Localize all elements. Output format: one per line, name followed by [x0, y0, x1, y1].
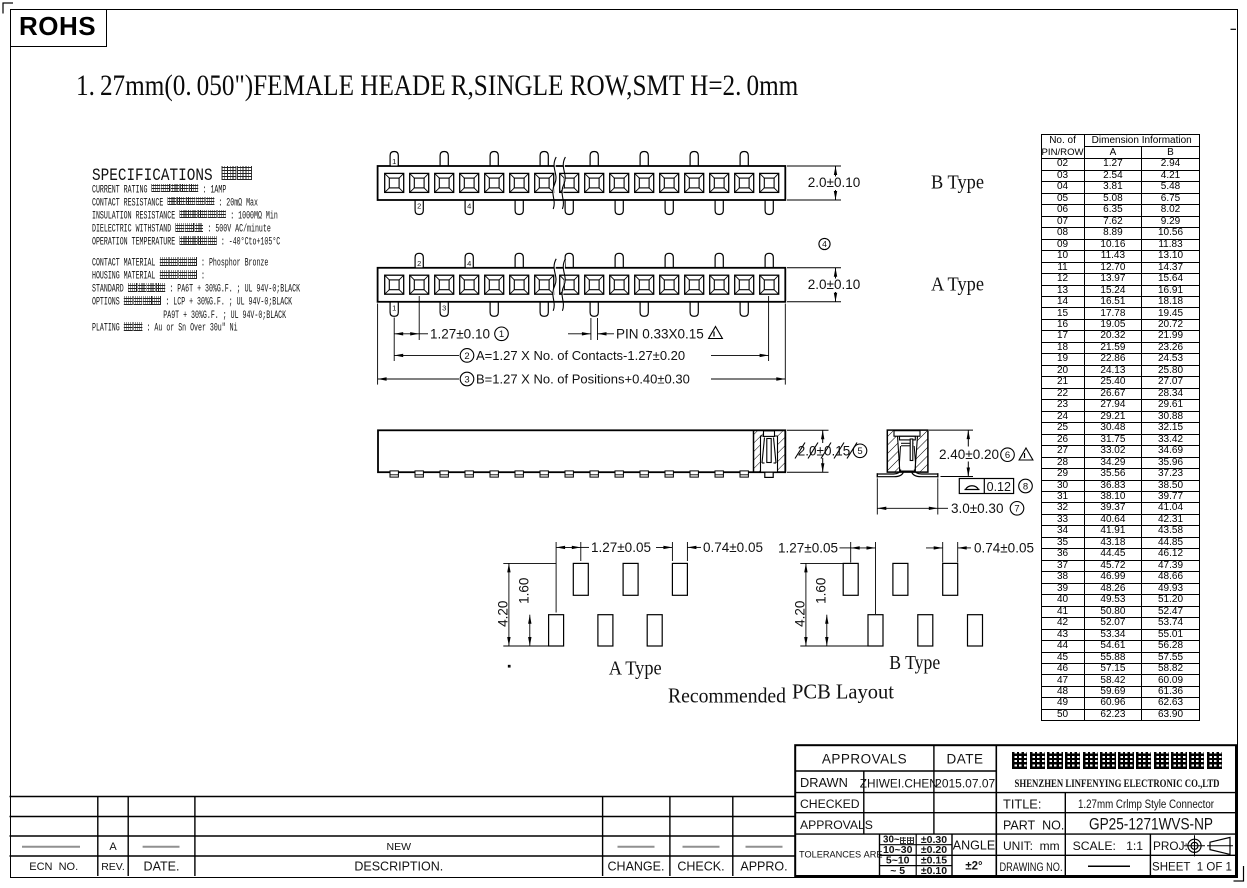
svg-text:B Type: B Type — [889, 652, 940, 674]
svg-text:8: 8 — [1023, 481, 1028, 492]
svg-text:A=1.27 X No. of Contacts-1.27±: A=1.27 X No. of Contacts-1.27±0.20 — [476, 348, 685, 363]
svg-text:1.27±0.05: 1.27±0.05 — [591, 540, 651, 555]
svg-text:2: 2 — [417, 202, 421, 211]
svg-text:A: A — [109, 841, 117, 853]
svg-text:±2°: ±2° — [965, 861, 983, 873]
svg-text:SHENZHEN LINFENYING ELECTRONIC: SHENZHEN LINFENYING ELECTRONIC CO.,LTD — [1015, 777, 1220, 790]
svg-text:0.74±0.05: 0.74±0.05 — [974, 540, 1034, 555]
svg-text:PIN 0.33X0.15: PIN 0.33X0.15 — [616, 326, 704, 341]
svg-text:CHECK.: CHECK. — [677, 859, 724, 873]
svg-text:PCB Layout: PCB Layout — [792, 680, 894, 704]
svg-text:1: 1 — [499, 329, 504, 340]
svg-text:2.40±0.20: 2.40±0.20 — [939, 447, 999, 462]
svg-text:4: 4 — [467, 259, 471, 268]
svg-text:PROJ:: PROJ: — [1153, 839, 1188, 853]
svg-text:ZHIWEI.CHEN: ZHIWEI.CHEN — [860, 777, 938, 791]
svg-text:1.27±0.05: 1.27±0.05 — [778, 540, 838, 555]
svg-text:2.0±0.10: 2.0±0.10 — [808, 277, 860, 292]
svg-text:3: 3 — [464, 374, 469, 385]
svg-text:APPROVALS: APPROVALS — [800, 818, 873, 832]
svg-text:TITLE:: TITLE: — [1003, 797, 1041, 812]
svg-text:A Type: A Type — [931, 274, 984, 296]
svg-text:SCALE: 1:1: SCALE: 1:1 — [1073, 839, 1144, 853]
svg-text:APPROVALS: APPROVALS — [822, 752, 907, 767]
svg-text:APPRO.: APPRO. — [740, 859, 787, 873]
svg-text:1.60: 1.60 — [813, 578, 828, 604]
svg-text:NEW: NEW — [387, 841, 412, 853]
svg-text:4: 4 — [822, 239, 827, 249]
svg-text:~ 5: ~ 5 — [890, 865, 905, 877]
svg-text:±0.10: ±0.10 — [921, 865, 947, 877]
svg-text:DRAWING NO.: DRAWING NO. — [1000, 860, 1063, 874]
svg-text:SHEET 1 OF 1: SHEET 1 OF 1 — [1152, 861, 1232, 873]
svg-text:A Type: A Type — [609, 657, 662, 679]
svg-text:PART NO.: PART NO. — [1003, 819, 1064, 833]
svg-text:ANGLE: ANGLE — [953, 839, 995, 853]
svg-text:2: 2 — [417, 259, 421, 268]
svg-text:CHANGE.: CHANGE. — [608, 859, 665, 873]
svg-text:4.20: 4.20 — [495, 601, 510, 627]
svg-text:4.20: 4.20 — [792, 601, 807, 627]
svg-text:DESCRIPTION.: DESCRIPTION. — [354, 859, 443, 873]
svg-text:2.0±0.10: 2.0±0.10 — [808, 175, 860, 190]
svg-text:4: 4 — [467, 202, 471, 211]
svg-text:DRAWN: DRAWN — [800, 775, 848, 790]
svg-text:7: 7 — [1014, 504, 1019, 515]
svg-text:1.60: 1.60 — [516, 578, 531, 604]
svg-text:TOLERANCES ARE: TOLERANCES ARE — [799, 850, 883, 860]
svg-text:3: 3 — [442, 303, 446, 312]
svg-text:1.27±0.10: 1.27±0.10 — [430, 326, 490, 341]
svg-text:1: 1 — [392, 303, 396, 312]
svg-text:2015.07.07: 2015.07.07 — [935, 777, 995, 791]
svg-text:B=1.27 X No. of Positions+0.40: B=1.27 X No. of Positions+0.40±0.30 — [476, 372, 690, 387]
svg-text:5: 5 — [857, 446, 862, 457]
svg-text:3.0±0.30: 3.0±0.30 — [951, 501, 1003, 516]
svg-text:0.12: 0.12 — [987, 480, 1011, 494]
svg-text:REV.: REV. — [101, 861, 125, 873]
svg-text:GP25-1271WVS-NP: GP25-1271WVS-NP — [1089, 815, 1213, 833]
svg-text:Recommended: Recommended — [668, 684, 786, 708]
svg-text:DATE: DATE — [946, 752, 983, 767]
svg-text:ECN NO.: ECN NO. — [29, 861, 78, 873]
svg-text:1: 1 — [392, 157, 396, 166]
svg-text:2: 2 — [464, 351, 469, 362]
svg-text:6: 6 — [1005, 450, 1010, 461]
svg-text:CHECKED: CHECKED — [800, 797, 860, 811]
svg-text:UNIT: mm: UNIT: mm — [1003, 839, 1060, 853]
svg-text:1.27mm Crlmp Style Connector: 1.27mm Crlmp Style Connector — [1078, 799, 1214, 811]
svg-text:DATE.: DATE. — [144, 859, 180, 873]
svg-text:B Type: B Type — [931, 172, 984, 194]
svg-text:0.74±0.05: 0.74±0.05 — [703, 540, 763, 555]
